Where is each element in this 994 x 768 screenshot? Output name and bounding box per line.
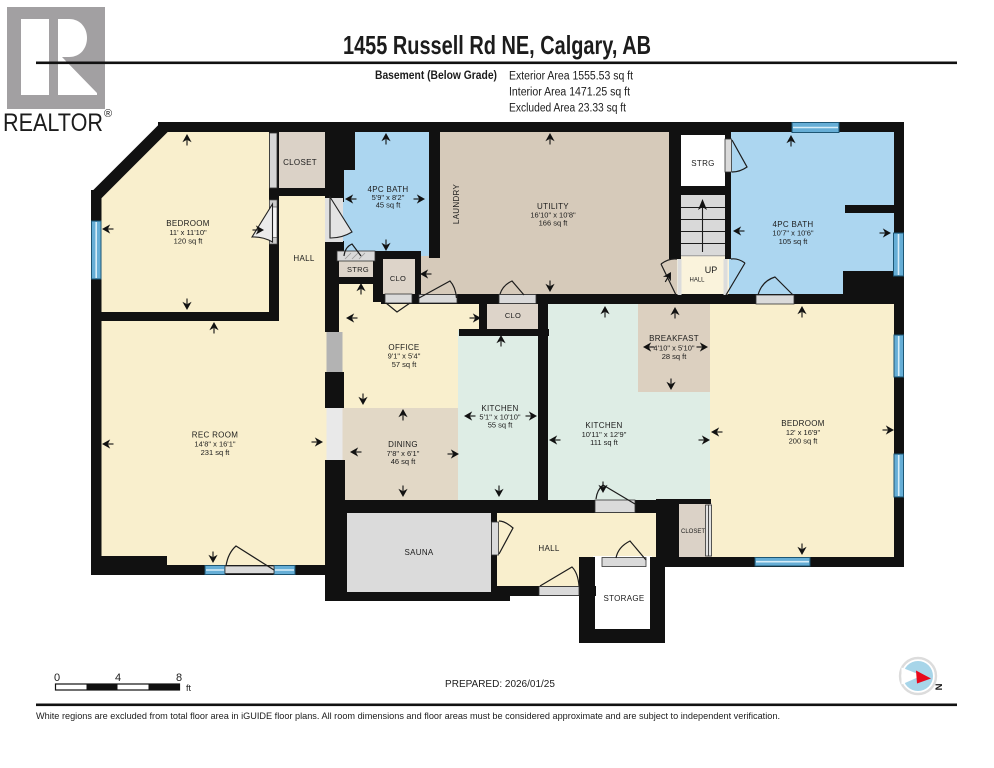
svg-text:UP: UP (705, 265, 718, 275)
svg-text:57 sq ft: 57 sq ft (392, 360, 418, 369)
svg-text:LAUNDRY: LAUNDRY (452, 184, 461, 225)
svg-text:4: 4 (115, 672, 121, 684)
svg-text:45 sq ft: 45 sq ft (376, 201, 402, 210)
svg-text:120 sq ft: 120 sq ft (174, 237, 204, 246)
svg-text:DINING: DINING (388, 440, 418, 449)
svg-text:Exterior Area 1555.53 sq ft: Exterior Area 1555.53 sq ft (509, 71, 634, 83)
svg-text:CLOSET: CLOSET (283, 158, 317, 167)
svg-text:166 sq ft: 166 sq ft (539, 219, 569, 228)
svg-text:N: N (933, 684, 944, 691)
svg-text:STRG: STRG (691, 159, 714, 168)
svg-text:111 sq ft: 111 sq ft (590, 438, 619, 447)
svg-text:Basement (Below Grade): Basement (Below Grade) (375, 68, 497, 82)
svg-text:46 sq ft: 46 sq ft (391, 457, 417, 466)
svg-text:®: ® (104, 108, 112, 120)
svg-text:Excluded Area 23.33 sq ft: Excluded Area 23.33 sq ft (509, 103, 627, 115)
svg-text:STORAGE: STORAGE (603, 594, 644, 603)
svg-text:BEDROOM: BEDROOM (781, 419, 824, 428)
svg-text:PREPARED: 2026/01/25: PREPARED: 2026/01/25 (445, 679, 555, 690)
svg-text:BEDROOM: BEDROOM (166, 219, 209, 228)
svg-text:28 sq ft: 28 sq ft (662, 352, 688, 361)
svg-text:HALL: HALL (293, 254, 314, 263)
svg-text:231 sq ft: 231 sq ft (201, 448, 231, 457)
svg-text:White regions are excluded fro: White regions are excluded from total fl… (36, 711, 780, 722)
svg-text:REC ROOM: REC ROOM (192, 431, 238, 440)
svg-text:CLOSET: CLOSET (681, 529, 705, 535)
svg-text:SAUNA: SAUNA (404, 548, 433, 557)
svg-text:CLO: CLO (505, 311, 521, 320)
svg-text:ft: ft (186, 683, 192, 693)
svg-text:1455 Russell Rd NE, Calgary, A: 1455 Russell Rd NE, Calgary, AB (343, 30, 651, 60)
svg-text:KITCHEN: KITCHEN (585, 421, 622, 430)
svg-text:STRG: STRG (347, 265, 369, 274)
svg-text:200 sq ft: 200 sq ft (789, 437, 819, 446)
svg-text:REALTOR: REALTOR (3, 109, 103, 137)
svg-text:8: 8 (176, 672, 182, 684)
svg-text:105 sq ft: 105 sq ft (779, 237, 809, 246)
svg-text:Interior Area 1471.25 sq ft: Interior Area 1471.25 sq ft (509, 87, 631, 99)
svg-text:CLO: CLO (390, 274, 406, 283)
svg-text:0: 0 (54, 672, 60, 684)
svg-text:55 sq ft: 55 sq ft (488, 421, 514, 430)
svg-text:HALL: HALL (689, 278, 705, 284)
svg-text:BREAKFAST: BREAKFAST (649, 334, 699, 343)
svg-text:HALL: HALL (538, 544, 559, 553)
